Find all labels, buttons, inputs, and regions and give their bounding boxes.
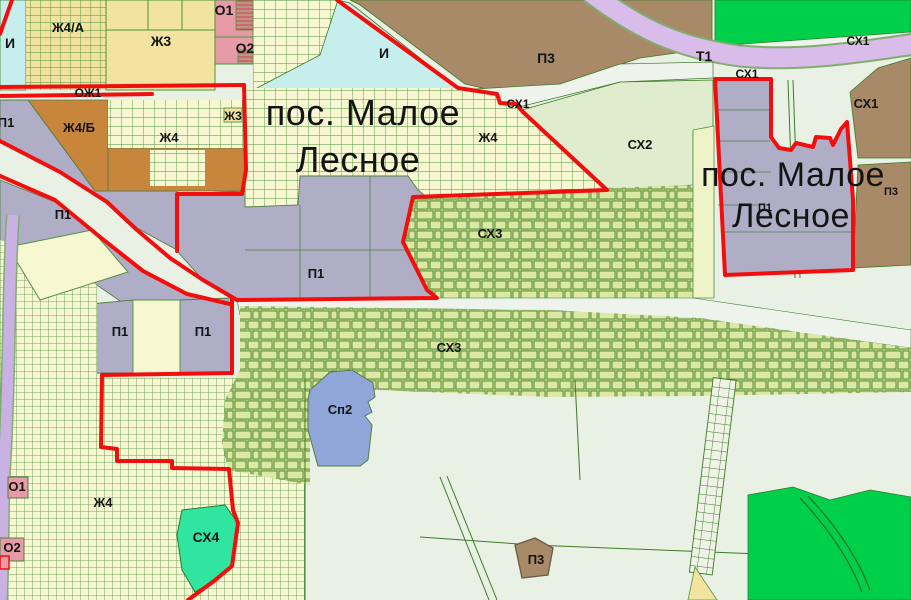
zone-label: Ж4/А (51, 20, 85, 35)
zone-label: СХ2 (628, 137, 653, 152)
zone-label: Ж3 (150, 33, 172, 49)
zone-label: П3 (528, 552, 545, 567)
zone-label: О2 (3, 540, 20, 555)
zone-label: П3 (537, 50, 555, 66)
zone-label: Сп2 (328, 402, 352, 417)
zone-label: П1 (55, 207, 72, 222)
zone-label: СХ3 (478, 226, 503, 241)
zone-label: О1 (8, 479, 25, 494)
zone-label: О1 (215, 2, 234, 18)
zone-label: П1 (0, 115, 14, 130)
zone-sx3-upper (403, 185, 693, 298)
zone-label: СХ4 (193, 529, 220, 545)
settlement-label: Лесное (732, 197, 850, 235)
zoning-map-canvas[interactable]: ИЖ4/АЖ3О1О2ОЖ1ИП3Т1СХ1СХ1СХ1СХ1СХ2Ж4/БЖ3… (0, 0, 911, 600)
zone-label: СХ1 (854, 96, 879, 111)
parcel-strip-column (693, 126, 714, 298)
zone-label: ОЖ1 (75, 86, 102, 100)
zone-label: И (5, 35, 15, 51)
zoning-map-viewport[interactable]: ИЖ4/АЖ3О1О2ОЖ1ИП3Т1СХ1СХ1СХ1СХ1СХ2Ж4/БЖ3… (0, 0, 911, 600)
zone-label: П3 (884, 186, 898, 198)
settlement-label: Лесное (296, 139, 421, 180)
zone-label: Ж3 (223, 109, 242, 123)
settlement-label: пос. Малое (266, 92, 460, 133)
parcel-column-pale (133, 300, 180, 373)
zone-sp2 (308, 370, 375, 466)
zone-label: СХ1 (507, 97, 530, 111)
zone-label: Ж4/Б (62, 120, 95, 135)
zone-label: Ж4 (478, 130, 499, 145)
zone-zh4a-grid (26, 0, 106, 90)
zone-label: О2 (236, 40, 255, 56)
zone-forest-bottom-right (748, 487, 911, 600)
zone-label: П1 (112, 324, 129, 339)
zone-label: П1 (308, 266, 325, 281)
zone-label: Ж4 (93, 495, 114, 510)
settlement-label: пос. Малое (701, 156, 885, 194)
zone-label: Т1 (696, 48, 713, 64)
zone-label: СХ1 (847, 34, 870, 48)
zone-label: П1 (195, 324, 212, 339)
zone-label: СХ1 (736, 67, 759, 81)
zone-label: СХ3 (437, 340, 462, 355)
zone-label: И (379, 45, 389, 61)
zone-label: Ж4 (159, 130, 180, 145)
